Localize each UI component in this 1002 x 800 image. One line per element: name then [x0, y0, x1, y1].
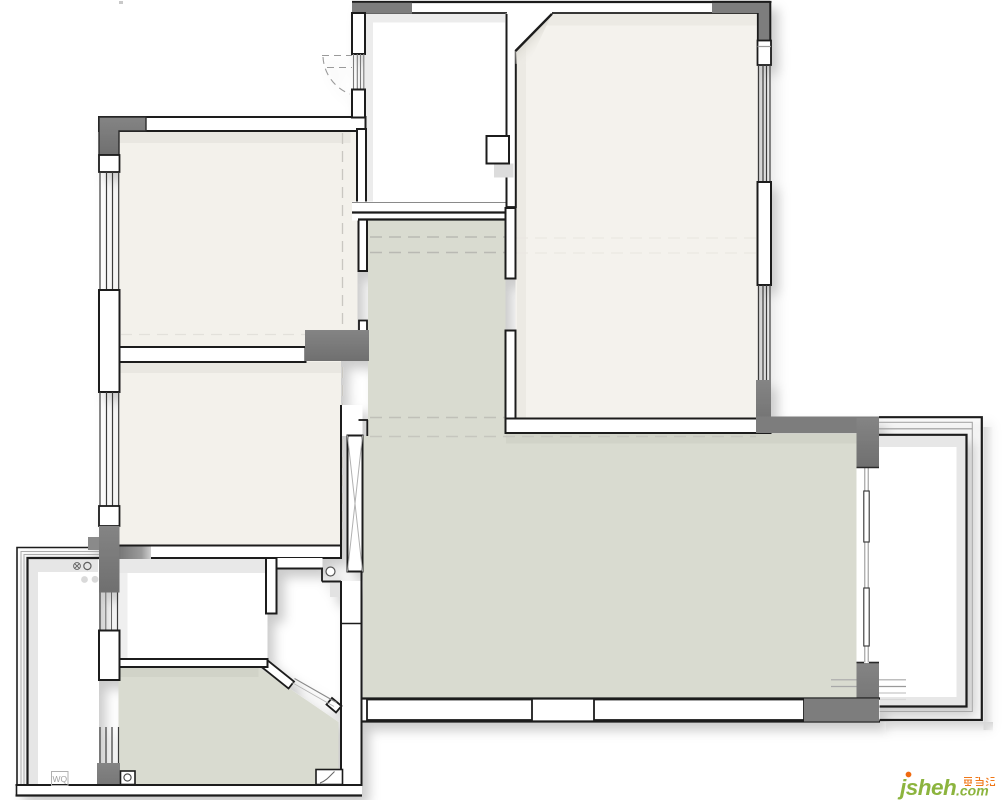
svg-text:.com: .com: [956, 783, 989, 799]
svg-text:jsheh: jsheh: [897, 775, 956, 800]
svg-text:WQ: WQ: [53, 774, 68, 784]
